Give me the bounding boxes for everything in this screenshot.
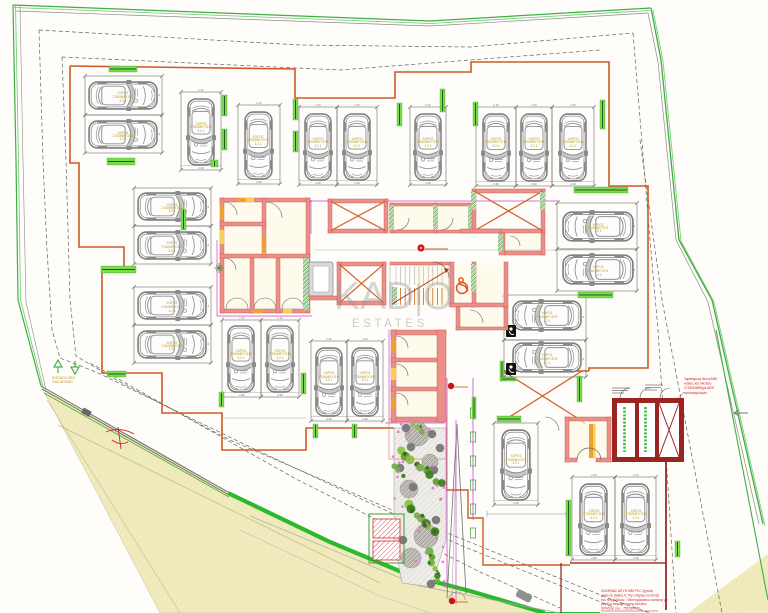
svg-text:2.30: 2.30 <box>256 101 262 105</box>
svg-text:2.30: 2.30 <box>277 316 283 320</box>
svg-text:2.30: 2.30 <box>425 181 431 185</box>
svg-text:3.2.1: 3.2.1 <box>424 144 431 148</box>
svg-text:3.2.1: 3.2.1 <box>512 461 519 465</box>
svg-text:3.2.1: 3.2.1 <box>168 209 175 213</box>
svg-text:1709/10889χαι ΔΕΗ: 1709/10889χαι ΔΕΗ <box>684 386 715 390</box>
svg-text:3.2.1: 3.2.1 <box>168 249 175 253</box>
svg-text:2.30: 2.30 <box>256 180 262 184</box>
svg-text:3.2.1: 3.2.1 <box>353 144 360 148</box>
svg-text:3.2.1: 3.2.1 <box>569 144 576 148</box>
svg-text:μέσα σε βάθος 0.70μ υπέργει το: μέσα σε βάθος 0.70μ υπέργει το σενάζ <box>601 593 660 597</box>
svg-text:ΟΔΟ ΔΡΟΜΟ: ΟΔΟ ΔΡΟΜΟ <box>52 380 73 384</box>
svg-text:2.30: 2.30 <box>354 103 360 107</box>
svg-text:3.2.1: 3.2.1 <box>314 144 321 148</box>
svg-text:2.30: 2.30 <box>493 182 499 186</box>
svg-text:ΧΡΗΣΗς του - 75ΓΔΤΑ-30: ΧΡΗΣΗς του - 75ΓΔΤΑ-30 <box>601 607 640 611</box>
svg-text:2.30: 2.30 <box>633 556 639 560</box>
svg-text:Υφιστάμενη θέση ΑΝΚ: Υφιστάμενη θέση ΑΝΚ <box>684 377 718 381</box>
svg-text:2.30: 2.30 <box>198 166 204 170</box>
svg-text:3.2.1: 3.2.1 <box>543 361 550 365</box>
svg-text:2.30: 2.30 <box>239 316 245 320</box>
svg-text:2.30: 2.30 <box>493 103 499 107</box>
svg-text:3.2.1: 3.2.1 <box>594 273 601 277</box>
svg-text:3.2.1: 3.2.1 <box>543 319 550 323</box>
svg-text:μεγάλη παροχέτευσης εισοδος: μεγάλη παροχέτευσης εισοδος <box>601 602 647 606</box>
svg-text:3.2.1: 3.2.1 <box>254 142 261 146</box>
svg-text:3.2.1: 3.2.1 <box>590 516 597 520</box>
svg-text:ESTATES: ESTATES <box>352 318 428 330</box>
svg-text:2.30: 2.30 <box>531 103 537 107</box>
svg-text:3.2.1: 3.2.1 <box>168 347 175 351</box>
svg-text:προσαρμοσμέν: προσαρμοσμέν <box>684 391 708 395</box>
svg-text:2.30: 2.30 <box>326 417 332 421</box>
svg-text:2.30: 2.30 <box>198 88 204 92</box>
svg-text:2.30: 2.30 <box>513 501 519 505</box>
svg-text:2.30: 2.30 <box>315 103 321 107</box>
svg-text:2.30: 2.30 <box>354 181 360 185</box>
svg-text:2.30: 2.30 <box>277 393 283 397</box>
svg-text:3.2.1: 3.2.1 <box>530 144 537 148</box>
svg-text:2.30: 2.30 <box>633 473 639 477</box>
svg-text:2.30: 2.30 <box>591 473 597 477</box>
svg-text:2.30: 2.30 <box>315 181 321 185</box>
svg-text:2.30: 2.30 <box>239 393 245 397</box>
svg-text:2.30: 2.30 <box>362 337 368 341</box>
svg-text:3.2.1: 3.2.1 <box>237 356 244 360</box>
svg-text:3.2.1: 3.2.1 <box>119 99 126 103</box>
svg-text:2.30: 2.30 <box>425 103 431 107</box>
svg-text:ΣΩΛΗΝΑΣ ΔΕΥΗ ΜΜ PVC ξηρούς: ΣΩΛΗΝΑΣ ΔΕΥΗ ΜΜ PVC ξηρούς <box>601 589 654 593</box>
svg-text:2.30: 2.30 <box>326 337 332 341</box>
svg-text:3.2.1: 3.2.1 <box>197 129 204 133</box>
svg-text:2.30: 2.30 <box>531 182 537 186</box>
svg-text:3.2.1: 3.2.1 <box>492 144 499 148</box>
svg-text:3.2.1: 3.2.1 <box>594 229 601 233</box>
svg-text:3.2.1: 3.2.1 <box>168 309 175 313</box>
svg-text:KAD|O: KAD|O <box>334 275 453 318</box>
svg-text:3.2.1: 3.2.1 <box>276 356 283 360</box>
svg-text:2.30: 2.30 <box>591 556 597 560</box>
svg-text:2.30: 2.30 <box>570 182 576 186</box>
svg-text:του περιβάλλον - Θέση φρεατίου: του περιβάλλον - Θέση φρεατίου ανάγκης μ… <box>601 598 668 602</box>
svg-text:3.2.1: 3.2.1 <box>361 378 368 382</box>
svg-text:3.2.1: 3.2.1 <box>119 137 126 141</box>
svg-text:2.30: 2.30 <box>362 417 368 421</box>
svg-text:3.2.1: 3.2.1 <box>632 516 639 520</box>
svg-text:3.2.1: 3.2.1 <box>325 378 332 382</box>
svg-text:καθώς και δικτύου: καθώς και δικτύου <box>684 382 711 386</box>
svg-text:2.30: 2.30 <box>570 103 576 107</box>
